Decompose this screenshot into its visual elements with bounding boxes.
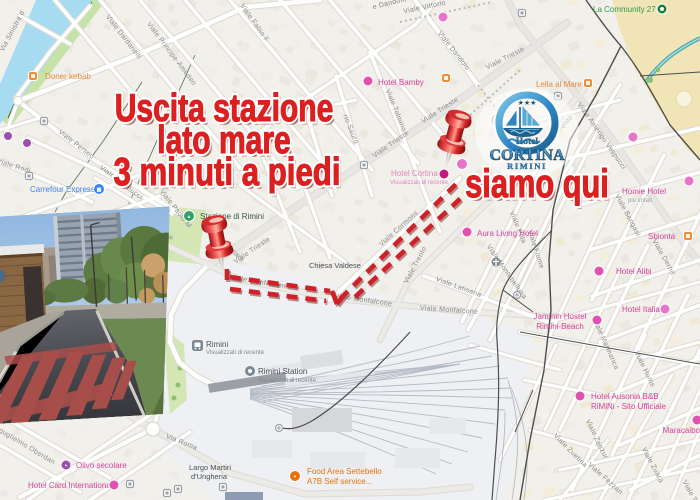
svg-text:3 minuti a piedi: 3 minuti a piedi: [114, 151, 341, 194]
svg-text:siamo qui: siamo qui: [465, 161, 609, 206]
svg-text:★★★: ★★★: [518, 99, 537, 107]
svg-text:Hotel: Hotel: [516, 137, 539, 147]
